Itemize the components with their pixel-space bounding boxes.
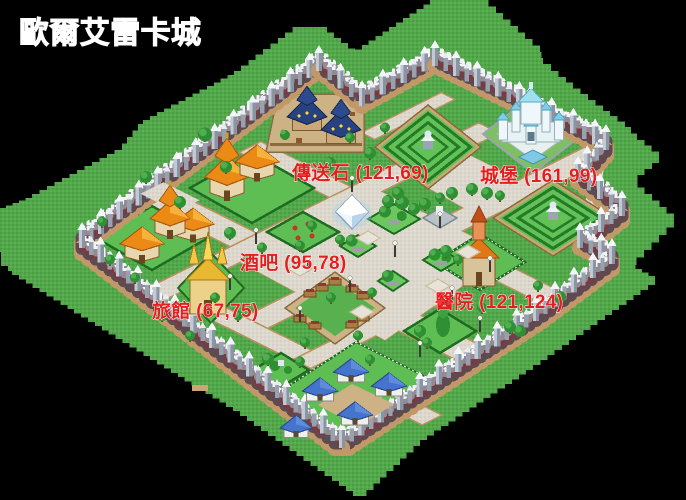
svg-text:歐爾艾雷卡城: 歐爾艾雷卡城 [19,17,201,50]
svg-text:傳送石 (121,69): 傳送石 (121,69) [291,161,429,184]
svg-text:城堡 (161,99): 城堡 (161,99) [480,164,597,187]
svg-text:旅館 (67,75): 旅館 (67,75) [152,299,258,322]
svg-text:醫院 (121,124): 醫院 (121,124) [435,290,563,313]
svg-text:酒吧 (95,78): 酒吧 (95,78) [240,252,346,274]
